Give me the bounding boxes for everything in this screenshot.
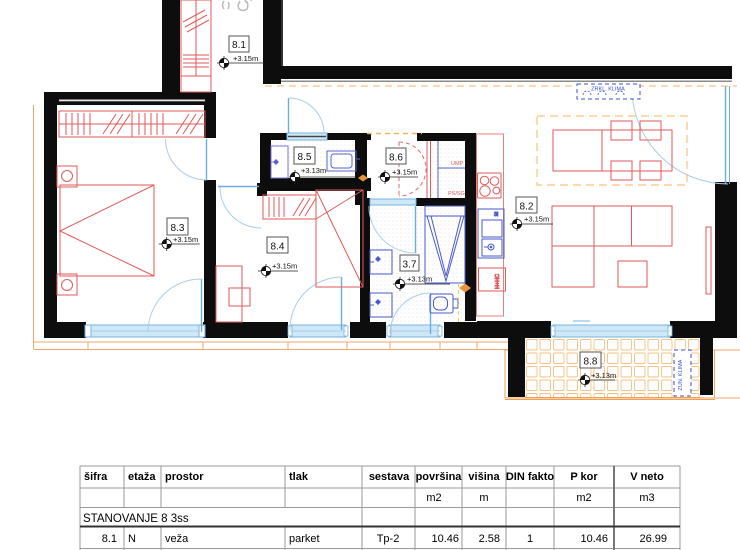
svg-text:prostor: prostor [165,471,204,483]
svg-text:višina: višina [468,471,500,483]
svg-text:8.1: 8.1 [102,533,117,545]
svg-text:parket: parket [289,533,320,545]
svg-text:2.58: 2.58 [479,533,500,545]
svg-text:+3.15m: +3.15m [392,168,417,177]
svg-text:+3.13m: +3.13m [407,275,432,284]
svg-text:10.46: 10.46 [431,533,459,545]
svg-text:ZRKL. KLIMA: ZRKL. KLIMA [591,87,625,93]
svg-text:8.6: 8.6 [389,153,403,164]
svg-text:UMP: UMP [451,161,464,167]
svg-text:+3.13m: +3.13m [591,371,616,380]
svg-text:8.8: 8.8 [584,357,598,368]
svg-text:8.3: 8.3 [171,223,185,234]
svg-text:šifra: šifra [84,471,108,483]
svg-text:Tp-2: Tp-2 [377,533,400,545]
svg-text:8.5: 8.5 [298,152,312,163]
svg-text:8.2: 8.2 [520,202,534,213]
svg-text:m3: m3 [639,492,654,504]
svg-text:10.46: 10.46 [580,533,608,545]
svg-text:H+HC: H+HC [495,274,501,289]
svg-text:sestava: sestava [369,471,410,483]
svg-text:m2: m2 [426,492,441,504]
svg-text:etaža: etaža [128,471,156,483]
svg-text:veža: veža [165,533,189,545]
svg-text:V neto: V neto [630,471,664,483]
svg-text:+3.15m: +3.15m [173,235,198,244]
svg-text:površina: površina [416,471,463,483]
svg-text:8.4: 8.4 [271,242,285,253]
svg-text:26.99: 26.99 [639,533,667,545]
svg-text:PS/SG: PS/SG [448,191,465,197]
svg-text:+3.15m: +3.15m [524,215,549,224]
svg-text:STANOVANJE 8 3ss: STANOVANJE 8 3ss [83,513,189,525]
svg-text:8.1: 8.1 [232,40,246,51]
svg-text:DIN fakto: DIN fakto [506,471,555,483]
svg-text:1: 1 [527,533,533,545]
svg-text:3l: 3l [494,212,498,218]
svg-text:m: m [479,492,488,504]
svg-text:m2: m2 [576,492,591,504]
svg-text:ZUN. KLIMA: ZUN. KLIMA [678,359,684,390]
svg-text:+3.15m: +3.15m [272,262,297,271]
svg-text:N: N [128,533,136,545]
svg-text:+3.15m: +3.15m [233,54,258,63]
svg-text:P kor: P kor [570,471,598,483]
svg-text:3.7: 3.7 [403,260,417,271]
svg-text:tlak: tlak [289,471,309,483]
svg-text:+3.13m: +3.13m [301,166,326,175]
